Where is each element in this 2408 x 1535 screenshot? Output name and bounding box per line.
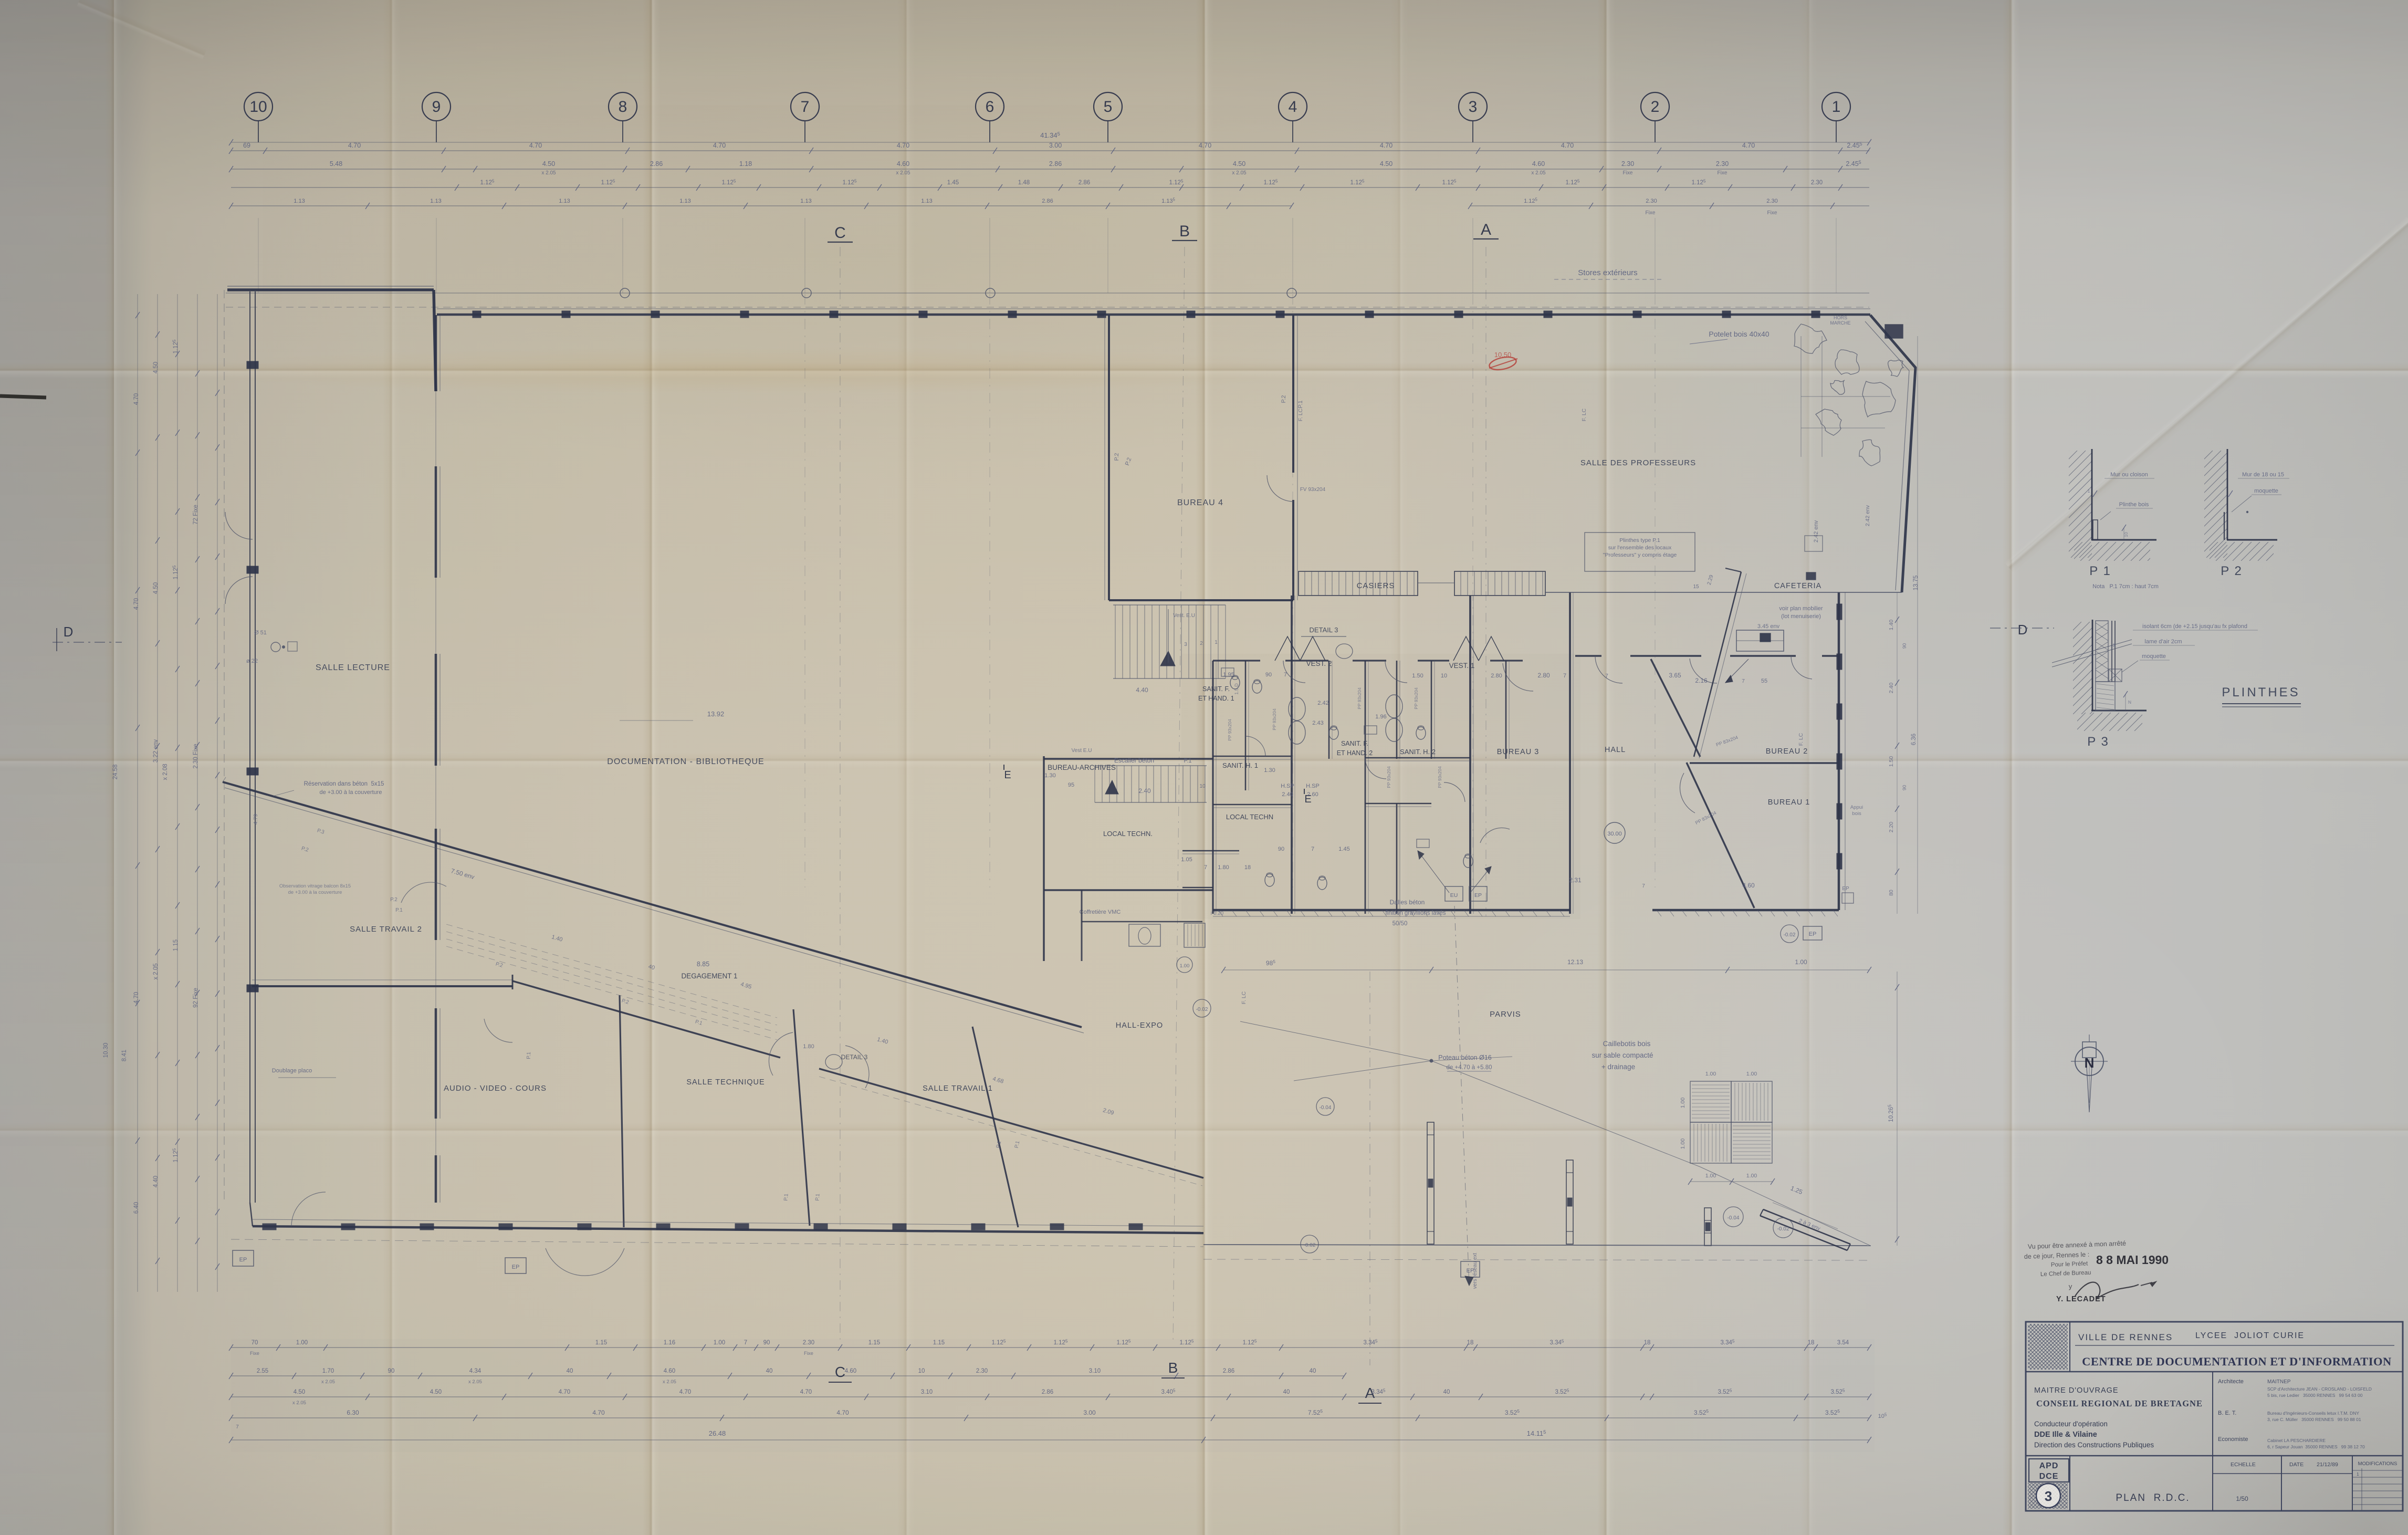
svg-text:HORS: HORS bbox=[1834, 315, 1847, 320]
svg-text:1.125: 1.125 bbox=[1565, 178, 1579, 186]
svg-text:10.265: 10.265 bbox=[1887, 1104, 1894, 1122]
svg-text:de +3.00 à la couverture: de +3.00 à la couverture bbox=[320, 789, 382, 796]
svg-text:1.125: 1.125 bbox=[1169, 178, 1183, 186]
svg-text:P 3: P 3 bbox=[2087, 735, 2109, 749]
svg-text:Y. LECADET: Y. LECADET bbox=[2056, 1295, 2106, 1303]
svg-text:sur l'ensemble des locaux: sur l'ensemble des locaux bbox=[1608, 545, 1672, 551]
svg-text:F. LC: F. LC bbox=[1241, 991, 1247, 1004]
svg-text:BUREAU 4: BUREAU 4 bbox=[1177, 498, 1223, 507]
svg-text:1: 1 bbox=[1215, 640, 1218, 645]
svg-text:4.79: 4.79 bbox=[253, 814, 259, 825]
svg-text:1/50: 1/50 bbox=[2236, 1495, 2248, 1502]
svg-text:Potelet bois 40x40: Potelet bois 40x40 bbox=[1709, 330, 1769, 338]
svg-text:EP: EP bbox=[239, 1257, 247, 1263]
svg-text:8: 8 bbox=[619, 98, 627, 116]
svg-text:P.2: P.2 bbox=[1281, 395, 1287, 403]
svg-text:4.40: 4.40 bbox=[153, 1176, 159, 1187]
svg-text:x 2.05: x 2.05 bbox=[896, 170, 910, 176]
svg-text:1.00: 1.00 bbox=[1705, 1071, 1716, 1077]
svg-text:2.16: 2.16 bbox=[1695, 677, 1708, 684]
svg-text:90: 90 bbox=[1902, 785, 1908, 791]
svg-text:P 1: P 1 bbox=[2089, 564, 2111, 578]
svg-text:4.40: 4.40 bbox=[1136, 686, 1148, 694]
svg-text:4.70: 4.70 bbox=[1561, 142, 1574, 149]
svg-text:1.45: 1.45 bbox=[947, 180, 959, 186]
svg-text:Escalier béton: Escalier béton bbox=[1114, 757, 1154, 764]
svg-text:4.70: 4.70 bbox=[133, 598, 140, 610]
svg-text:P.1: P.1 bbox=[783, 1193, 789, 1201]
svg-text:2.42 env: 2.42 env bbox=[1813, 520, 1819, 542]
svg-text:4.70: 4.70 bbox=[1380, 142, 1393, 149]
svg-text:SALLE TRAVAIL 1: SALLE TRAVAIL 1 bbox=[923, 1084, 993, 1093]
svg-text:7: 7 bbox=[1642, 883, 1645, 889]
svg-text:B: B bbox=[1179, 223, 1190, 240]
svg-text:de +3.00 à la couverture: de +3.00 à la couverture bbox=[288, 890, 342, 895]
svg-text:41.345: 41.345 bbox=[1040, 131, 1060, 139]
svg-text:3.00: 3.00 bbox=[1049, 142, 1062, 149]
svg-text:72 Fixe: 72 Fixe bbox=[193, 505, 199, 525]
svg-text:21/12/89: 21/12/89 bbox=[2317, 1461, 2338, 1468]
svg-text:1.125: 1.125 bbox=[1691, 178, 1705, 186]
svg-text:1.125: 1.125 bbox=[171, 565, 179, 579]
svg-text:AUDIO - VIDEO - COURS: AUDIO - VIDEO - COURS bbox=[444, 1084, 547, 1093]
svg-text:1.50: 1.50 bbox=[1888, 756, 1894, 767]
svg-text:PP 83x204: PP 83x204 bbox=[1715, 735, 1739, 747]
svg-text:1.125: 1.125 bbox=[1350, 178, 1364, 186]
svg-text:1.00: 1.00 bbox=[1746, 1071, 1757, 1077]
svg-text:BUREAU-ARCHIVES: BUREAU-ARCHIVES bbox=[1048, 764, 1116, 771]
svg-text:Conducteur d'opération: Conducteur d'opération bbox=[2034, 1420, 2108, 1428]
svg-text:4.70: 4.70 bbox=[529, 142, 542, 149]
svg-text:N: N bbox=[2085, 1055, 2095, 1071]
svg-text:24.58: 24.58 bbox=[112, 765, 119, 780]
svg-text:15: 15 bbox=[1693, 584, 1699, 590]
svg-text:8 8 MAI 1990: 8 8 MAI 1990 bbox=[2096, 1253, 2169, 1267]
svg-text:4.60: 4.60 bbox=[897, 160, 909, 168]
svg-text:2.30 Fixe: 2.30 Fixe bbox=[193, 744, 199, 768]
svg-text:-0.04: -0.04 bbox=[1320, 1105, 1332, 1111]
svg-text:P.2: P.2 bbox=[621, 998, 630, 1005]
svg-text:Mur de 18 ou 15: Mur de 18 ou 15 bbox=[2242, 472, 2284, 478]
svg-text:Direction des Constructions Pu: Direction des Constructions Publiques bbox=[2034, 1441, 2154, 1449]
svg-text:4.50: 4.50 bbox=[542, 160, 555, 168]
svg-text:1.125: 1.125 bbox=[1442, 178, 1456, 186]
svg-text:1.80: 1.80 bbox=[803, 1043, 814, 1050]
svg-text:2.30: 2.30 bbox=[1646, 198, 1657, 204]
svg-text:80: 80 bbox=[1888, 890, 1894, 896]
svg-text:4.70: 4.70 bbox=[348, 142, 361, 149]
svg-text:4.70: 4.70 bbox=[897, 142, 909, 149]
svg-text:92 Fixe: 92 Fixe bbox=[193, 988, 199, 1008]
svg-text:1.30: 1.30 bbox=[1044, 772, 1055, 779]
svg-text:x 2.08: x 2.08 bbox=[162, 764, 169, 780]
svg-text:Ø 51: Ø 51 bbox=[254, 630, 267, 636]
svg-text:P.2: P.2 bbox=[390, 897, 397, 903]
svg-text:2.40: 2.40 bbox=[1888, 683, 1894, 694]
svg-text:+ drainage: + drainage bbox=[1601, 1063, 1635, 1071]
svg-text:PLAN R.D.C.: PLAN R.D.C. bbox=[2116, 1492, 2190, 1503]
svg-text:P.2: P.2 bbox=[1124, 457, 1133, 466]
svg-text:1: 1 bbox=[2357, 1471, 2359, 1477]
svg-text:CAFETERIA: CAFETERIA bbox=[1774, 582, 1821, 590]
svg-text:6: 6 bbox=[986, 98, 994, 116]
svg-text:2.30: 2.30 bbox=[1766, 198, 1777, 204]
svg-text:y: y bbox=[2069, 1282, 2072, 1290]
svg-text:MAITNEP: MAITNEP bbox=[2267, 1379, 2291, 1385]
svg-text:Appui: Appui bbox=[1850, 805, 1863, 810]
svg-text:D: D bbox=[2018, 622, 2028, 638]
svg-text:DCE: DCE bbox=[2039, 1472, 2059, 1481]
svg-text:1.00: 1.00 bbox=[1680, 1139, 1686, 1150]
svg-text:10: 10 bbox=[249, 98, 267, 116]
svg-text:APD: APD bbox=[2039, 1461, 2059, 1470]
svg-text:1: 1 bbox=[2087, 488, 2090, 494]
svg-text:1.40: 1.40 bbox=[551, 934, 563, 943]
svg-text:1.40: 1.40 bbox=[1888, 620, 1894, 631]
svg-text:P.1: P.1 bbox=[1297, 400, 1304, 408]
svg-text:1.125: 1.125 bbox=[1524, 197, 1537, 205]
svg-text:7: 7 bbox=[801, 98, 810, 116]
svg-text:1.18: 1.18 bbox=[739, 160, 752, 168]
svg-text:95: 95 bbox=[1068, 782, 1074, 788]
svg-text:x 2.05: x 2.05 bbox=[1531, 170, 1546, 176]
svg-text:4.70: 4.70 bbox=[133, 393, 140, 405]
svg-text:MARCHE: MARCHE bbox=[1830, 320, 1850, 326]
svg-text:Architecte: Architecte bbox=[2218, 1379, 2244, 1385]
svg-text:de +4.70 à +5.80: de +4.70 à +5.80 bbox=[1447, 1064, 1492, 1071]
svg-text:P 2: P 2 bbox=[2221, 564, 2243, 578]
svg-text:DDE Ille & Vilaine: DDE Ille & Vilaine bbox=[2034, 1430, 2097, 1439]
svg-text:BUREAU 1: BUREAU 1 bbox=[1768, 798, 1810, 807]
svg-text:2.30: 2.30 bbox=[1716, 160, 1729, 168]
svg-text:DETAIL 3: DETAIL 3 bbox=[841, 1053, 868, 1061]
svg-text:isolant 6cm (de +2.15 jusqu'au: isolant 6cm (de +2.15 jusqu'au fx plafon… bbox=[2142, 623, 2247, 630]
svg-text:4.70: 4.70 bbox=[133, 992, 140, 1004]
svg-text:A: A bbox=[1481, 221, 1491, 238]
svg-text:Plinthes type P.1: Plinthes type P.1 bbox=[1619, 537, 1660, 544]
svg-text:P.1: P.1 bbox=[695, 1019, 704, 1026]
svg-text:FV 93x204: FV 93x204 bbox=[1300, 487, 1326, 493]
svg-text:2.86: 2.86 bbox=[1042, 198, 1053, 204]
svg-text:9: 9 bbox=[432, 98, 441, 116]
svg-text:7: 7 bbox=[1605, 673, 1608, 679]
svg-text:2.40: 2.40 bbox=[1138, 787, 1151, 795]
svg-text:-0.02: -0.02 bbox=[1784, 932, 1796, 938]
svg-text:-0.02: -0.02 bbox=[1777, 1226, 1789, 1232]
svg-text:DEGAGEMENT 1: DEGAGEMENT 1 bbox=[681, 972, 737, 980]
svg-text:2.30: 2.30 bbox=[1621, 160, 1634, 168]
svg-text:1.125: 1.125 bbox=[721, 178, 736, 186]
svg-text:lame d'air 2cm: lame d'air 2cm bbox=[2144, 639, 2182, 645]
svg-text:6.36: 6.36 bbox=[1911, 734, 1917, 745]
svg-text:2: 2 bbox=[1200, 641, 1203, 646]
svg-text:de ce jour, Rennes le :: de ce jour, Rennes le : bbox=[2024, 1251, 2090, 1260]
svg-text:SCP d'Architecture JEAN - CROS: SCP d'Architecture JEAN - CROSLAND - LOI… bbox=[2267, 1386, 2372, 1392]
svg-text:1.48: 1.48 bbox=[1018, 180, 1030, 186]
svg-text:6.40: 6.40 bbox=[133, 1202, 140, 1214]
svg-text:3.22 env: 3.22 env bbox=[153, 739, 159, 763]
svg-text:1.125: 1.125 bbox=[171, 1148, 179, 1162]
svg-text:1.13: 1.13 bbox=[294, 198, 305, 204]
svg-text:SALLE TECHNIQUE: SALLE TECHNIQUE bbox=[686, 1078, 765, 1087]
svg-text:4.70: 4.70 bbox=[1742, 142, 1755, 149]
svg-text:13.75: 13.75 bbox=[1913, 576, 1919, 591]
svg-text:4: 4 bbox=[1289, 98, 1297, 116]
svg-text:F. LC: F. LC bbox=[1297, 408, 1304, 421]
svg-text:E: E bbox=[1004, 769, 1011, 781]
svg-text:Plinthe bois: Plinthe bois bbox=[2119, 502, 2149, 508]
svg-text:moquette: moquette bbox=[2254, 488, 2278, 494]
svg-text:4.68: 4.68 bbox=[992, 1075, 1004, 1084]
svg-text:Pour le Préfet: Pour le Préfet bbox=[2051, 1261, 2088, 1268]
svg-text:Vu pour être annexé à mon arrê: Vu pour être annexé à mon arrêté bbox=[2028, 1239, 2127, 1250]
svg-text:BUREAU 2: BUREAU 2 bbox=[1766, 747, 1808, 756]
svg-text:"Professeurs" y compris étage: "Professeurs" y compris étage bbox=[1603, 552, 1677, 558]
svg-text:6, r Sapeur Jouan 35000 RENNE: 6, r Sapeur Jouan 35000 RENNES 99 38 12 … bbox=[2267, 1444, 2365, 1449]
svg-text:Doublage placo: Doublage placo bbox=[272, 1068, 312, 1074]
svg-text:P.2: P.2 bbox=[1114, 453, 1120, 461]
svg-text:7: 7 bbox=[1742, 678, 1745, 684]
svg-text:vers réseau ext: vers réseau ext bbox=[1472, 1253, 1478, 1289]
svg-text:2: 2 bbox=[1651, 98, 1660, 116]
svg-text:10: 10 bbox=[2123, 532, 2129, 537]
svg-text:1.00: 1.00 bbox=[1180, 963, 1190, 969]
svg-text:PP 83x204: PP 83x204 bbox=[1694, 810, 1717, 826]
svg-text:1.40: 1.40 bbox=[876, 1036, 889, 1045]
svg-text:PLINTHES: PLINTHES bbox=[2222, 685, 2300, 699]
svg-text:P.1: P.1 bbox=[814, 1193, 821, 1201]
svg-text:8.85: 8.85 bbox=[697, 960, 709, 968]
svg-text:3.65: 3.65 bbox=[1669, 672, 1681, 679]
svg-text:voir plan mobilier: voir plan mobilier bbox=[1779, 605, 1823, 612]
svg-text:x 2.05: x 2.05 bbox=[541, 170, 556, 176]
svg-text:P.2: P.2 bbox=[301, 845, 310, 853]
svg-text:EP: EP bbox=[1842, 886, 1849, 892]
svg-text:2.20: 2.20 bbox=[1888, 822, 1894, 833]
svg-text:Vest. E.U: Vest. E.U bbox=[1173, 613, 1195, 619]
svg-text:x 2.05: x 2.05 bbox=[1232, 170, 1247, 176]
svg-text:4.95: 4.95 bbox=[740, 981, 752, 990]
svg-text:69: 69 bbox=[243, 142, 250, 149]
svg-text:N: N bbox=[2128, 699, 2131, 705]
svg-text:PARVIS: PARVIS bbox=[1490, 1010, 1521, 1019]
svg-text:SALLE LECTURE: SALLE LECTURE bbox=[316, 663, 390, 672]
svg-text:P.3: P.3 bbox=[317, 828, 326, 835]
svg-text:10,50: 10,50 bbox=[1494, 351, 1512, 359]
svg-text:1.25: 1.25 bbox=[1789, 1184, 1804, 1196]
svg-text:(lot menuiserie): (lot menuiserie) bbox=[1781, 613, 1821, 620]
svg-text:Fixe: Fixe bbox=[1646, 210, 1656, 216]
svg-text:2.86: 2.86 bbox=[1079, 180, 1090, 186]
svg-text:3: 3 bbox=[2112, 643, 2115, 648]
svg-text:1.135: 1.135 bbox=[1161, 197, 1175, 205]
svg-text:1.125: 1.125 bbox=[1263, 178, 1278, 186]
svg-text:2.09: 2.09 bbox=[1102, 1107, 1115, 1116]
svg-text:3: 3 bbox=[1469, 98, 1478, 116]
svg-text:1.13: 1.13 bbox=[679, 198, 690, 204]
svg-text:ECHELLE: ECHELLE bbox=[2231, 1461, 2256, 1468]
svg-text:DATE: DATE bbox=[2289, 1461, 2304, 1468]
svg-text:CONSEIL REGIONAL DE BRETAGNE: CONSEIL REGIONAL DE BRETAGNE bbox=[2036, 1398, 2203, 1408]
svg-text:1.125: 1.125 bbox=[842, 178, 856, 186]
svg-text:2 à 3 env: 2 à 3 env bbox=[1798, 1218, 1821, 1233]
svg-text:40: 40 bbox=[647, 964, 655, 972]
svg-text:1.13: 1.13 bbox=[921, 198, 932, 204]
svg-text:MAITRE D'OUVRAGE: MAITRE D'OUVRAGE bbox=[2034, 1386, 2119, 1395]
svg-text:P.1: P.1 bbox=[395, 907, 403, 913]
svg-text:P.1: P.1 bbox=[996, 1140, 1003, 1148]
svg-text:4.50: 4.50 bbox=[1233, 160, 1245, 168]
svg-text:1: 1 bbox=[1832, 98, 1841, 116]
svg-text:4.70: 4.70 bbox=[713, 142, 726, 149]
svg-text:ø 22: ø 22 bbox=[246, 658, 258, 664]
svg-text:x 2.05: x 2.05 bbox=[153, 963, 159, 979]
svg-text:50/50: 50/50 bbox=[1393, 921, 1408, 927]
svg-text:30.00: 30.00 bbox=[1607, 831, 1622, 837]
svg-text:4.50: 4.50 bbox=[153, 582, 159, 594]
svg-text:LOCAL TECHN.: LOCAL TECHN. bbox=[1103, 830, 1153, 838]
svg-text:105: 105 bbox=[1878, 1413, 1887, 1420]
svg-text:4.60: 4.60 bbox=[1532, 160, 1545, 168]
svg-text:Economiste: Economiste bbox=[2218, 1436, 2248, 1443]
svg-text:4.50: 4.50 bbox=[1380, 160, 1393, 168]
svg-text:Nota P.1 7cm : haut 7cm: Nota P.1 7cm : haut 7cm bbox=[2092, 583, 2159, 590]
svg-text:DOCUMENTATION - BIBLIOTHEQUE: DOCUMENTATION - BIBLIOTHEQUE bbox=[607, 757, 764, 766]
svg-text:55: 55 bbox=[1761, 678, 1767, 684]
svg-text:3.45 env: 3.45 env bbox=[1757, 623, 1780, 630]
svg-text:Observation vitrage balcon 8x1: Observation vitrage balcon 8x15 bbox=[279, 883, 351, 889]
svg-text:2.86: 2.86 bbox=[1049, 160, 1062, 168]
svg-text:-0.02: -0.02 bbox=[1304, 1242, 1316, 1248]
svg-text:5.48: 5.48 bbox=[330, 160, 342, 168]
svg-text:5: 5 bbox=[1104, 98, 1113, 116]
svg-text:1.00: 1.00 bbox=[1795, 958, 1807, 966]
svg-text:sur sable compacté: sur sable compacté bbox=[1592, 1051, 1653, 1059]
svg-text:F. LC: F. LC bbox=[1581, 408, 1587, 421]
svg-text:P.2: P.2 bbox=[495, 961, 504, 968]
svg-text:EP: EP bbox=[1809, 931, 1817, 937]
svg-text:1.13: 1.13 bbox=[430, 198, 441, 204]
svg-text:Le Chef de Bureau: Le Chef de Bureau bbox=[2040, 1270, 2091, 1278]
svg-text:EP: EP bbox=[512, 1264, 520, 1270]
svg-text:4.70: 4.70 bbox=[1199, 142, 1211, 149]
svg-text:Bureau d'Ingénieurs-Conseils l: Bureau d'Ingénieurs-Conseils letux I.T.M… bbox=[2267, 1411, 2359, 1416]
svg-text:1.00: 1.00 bbox=[1705, 1173, 1716, 1179]
svg-text:90: 90 bbox=[1902, 643, 1908, 649]
svg-text:MODIFICATIONS: MODIFICATIONS bbox=[2358, 1461, 2397, 1467]
svg-text:moquette: moquette bbox=[2142, 653, 2166, 660]
svg-text:12.13: 12.13 bbox=[1567, 958, 1583, 966]
svg-text:DETAIL 3: DETAIL 3 bbox=[1310, 626, 1338, 634]
svg-text:F. LC: F. LC bbox=[1798, 733, 1804, 746]
svg-text:SALLE DES PROFESSEURS: SALLE DES PROFESSEURS bbox=[1580, 458, 1696, 467]
svg-text:HALL-EXPO: HALL-EXPO bbox=[1116, 1021, 1163, 1030]
svg-text:-0.02: -0.02 bbox=[1196, 1007, 1208, 1012]
svg-text:Fixe: Fixe bbox=[1767, 210, 1777, 216]
svg-text:3: 3 bbox=[2045, 1488, 2052, 1504]
svg-text:10.30: 10.30 bbox=[103, 1043, 109, 1058]
svg-text:D: D bbox=[64, 624, 74, 640]
svg-text:Fixe: Fixe bbox=[1623, 170, 1633, 176]
svg-text:1.125: 1.125 bbox=[601, 178, 615, 186]
svg-text:-0.04: -0.04 bbox=[1728, 1215, 1740, 1221]
svg-text:3, rue C. Müller 35000 RENNE: 3, rue C. Müller 35000 RENNES 99 50 88 0… bbox=[2267, 1417, 2361, 1422]
svg-text:Réservation dans béton 5x15: Réservation dans béton 5x15 bbox=[304, 781, 384, 787]
svg-text:985: 985 bbox=[1266, 959, 1275, 967]
svg-text:1.125: 1.125 bbox=[480, 178, 494, 186]
svg-text:P.1: P.1 bbox=[526, 1051, 532, 1059]
svg-text:C: C bbox=[834, 224, 846, 242]
svg-text:Fixe: Fixe bbox=[1718, 170, 1728, 176]
svg-text:Vest E.U: Vest E.U bbox=[1072, 748, 1092, 754]
svg-text:CENTRE DE DOCUMENTATION ET D'I: CENTRE DE DOCUMENTATION ET D'INFORMATION bbox=[2082, 1355, 2392, 1368]
svg-text:P.1: P.1 bbox=[1014, 1140, 1021, 1148]
svg-text:1.125: 1.125 bbox=[171, 339, 179, 353]
svg-text:LYCEE JOLIOT CURIE: LYCEE JOLIOT CURIE bbox=[2195, 1331, 2305, 1340]
svg-text:CASIERS: CASIERS bbox=[1357, 581, 1395, 590]
svg-text:1.13: 1.13 bbox=[800, 198, 811, 204]
svg-text:Coffretière VMC: Coffretière VMC bbox=[1080, 909, 1121, 915]
svg-text:B. E. T.: B. E. T. bbox=[2218, 1410, 2236, 1416]
svg-text:4.60: 4.60 bbox=[1742, 882, 1755, 889]
svg-text:2.42 env: 2.42 env bbox=[1865, 505, 1871, 526]
svg-text:Caillebotis bois: Caillebotis bois bbox=[1603, 1040, 1651, 1048]
svg-text:5 bis, rue Ledier 35000 RENN: 5 bis, rue Ledier 35000 RENNES 99 54 63 … bbox=[2267, 1393, 2363, 1398]
svg-text:Mur ou cloison: Mur ou cloison bbox=[2110, 472, 2148, 478]
svg-text:2.455: 2.455 bbox=[1847, 141, 1862, 149]
svg-text:8.41: 8.41 bbox=[121, 1050, 128, 1061]
svg-text:2.30: 2.30 bbox=[1811, 180, 1823, 186]
svg-text:2.455: 2.455 bbox=[1846, 160, 1861, 168]
svg-text:VILLE DE RENNES: VILLE DE RENNES bbox=[2078, 1332, 2173, 1342]
svg-text:4.50: 4.50 bbox=[153, 362, 159, 373]
svg-text:7.50 env: 7.50 env bbox=[450, 867, 475, 881]
svg-text:1.15: 1.15 bbox=[173, 939, 179, 951]
svg-text:13.92: 13.92 bbox=[707, 710, 725, 718]
svg-text:2.86: 2.86 bbox=[650, 160, 663, 168]
svg-text:1.13: 1.13 bbox=[559, 198, 570, 204]
svg-text:bois: bois bbox=[1852, 811, 1861, 817]
svg-text:Stores extérieurs: Stores extérieurs bbox=[1578, 268, 1637, 277]
svg-text:1.00: 1.00 bbox=[1746, 1173, 1757, 1179]
svg-text:3: 3 bbox=[1184, 642, 1187, 648]
svg-text:2.29: 2.29 bbox=[1706, 574, 1715, 586]
svg-text:HALL: HALL bbox=[1605, 746, 1626, 754]
svg-text:1.00: 1.00 bbox=[1680, 1098, 1686, 1109]
svg-text:Cabinet LA PESCHARDIERE: Cabinet LA PESCHARDIERE bbox=[2267, 1438, 2326, 1443]
svg-text:SALLE TRAVAIL 2: SALLE TRAVAIL 2 bbox=[350, 925, 422, 934]
